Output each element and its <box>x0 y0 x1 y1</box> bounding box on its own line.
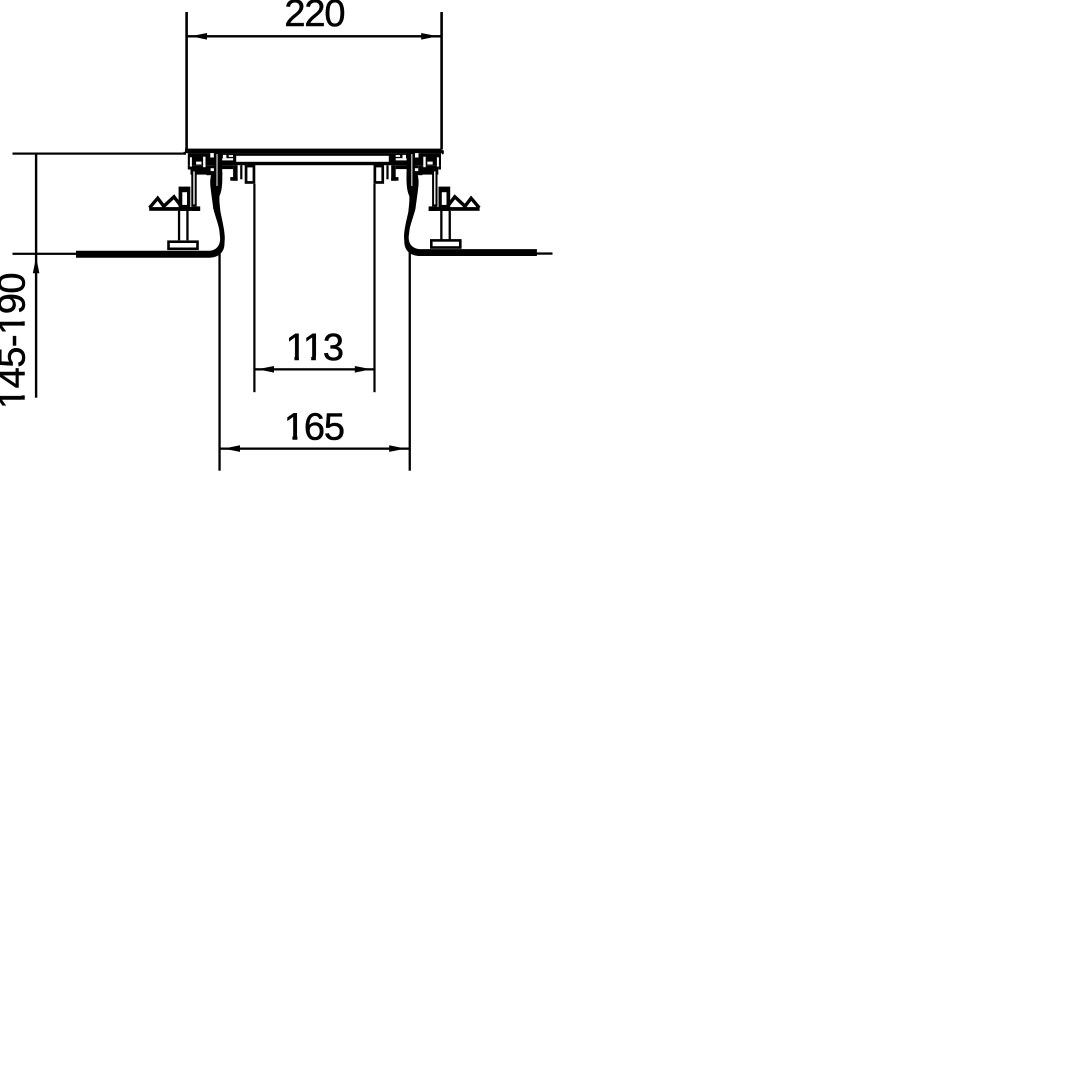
svg-text:145-190: 145-190 <box>0 273 34 409</box>
svg-text:113: 113 <box>286 327 343 369</box>
svg-text:220: 220 <box>284 0 344 35</box>
svg-text:165: 165 <box>284 407 344 449</box>
